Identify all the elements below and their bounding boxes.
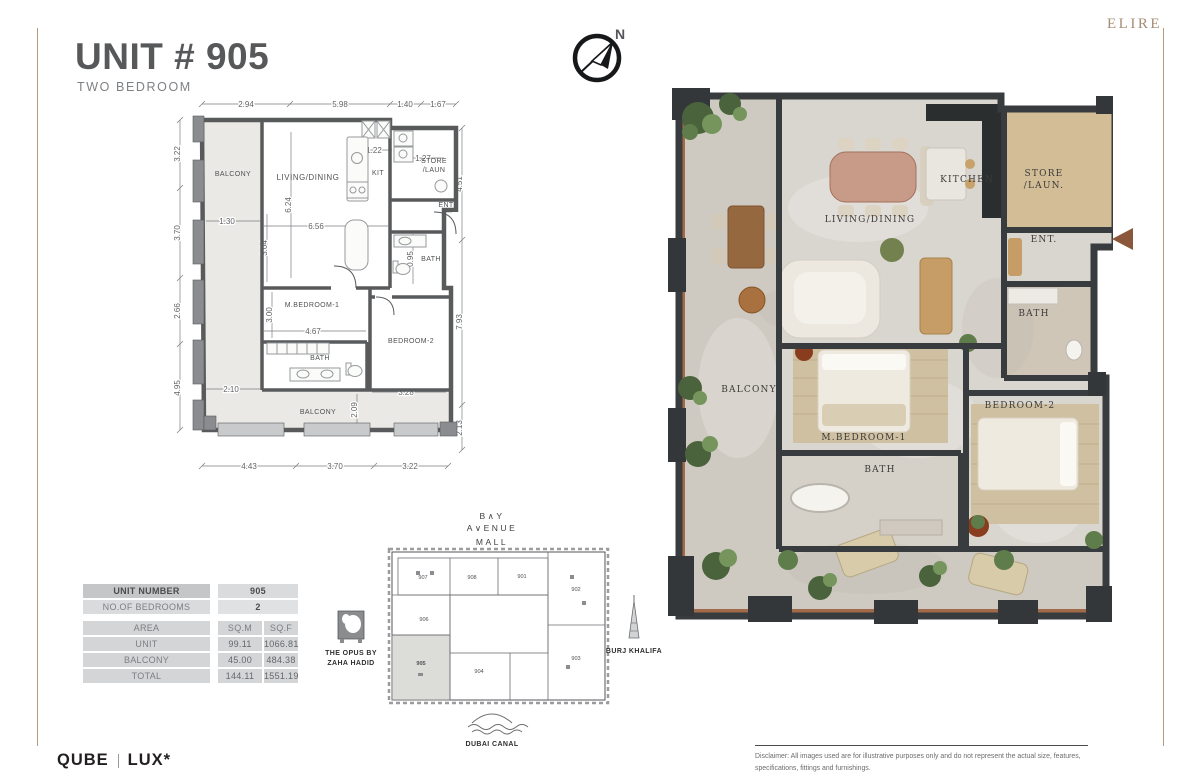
page-title: UNIT # 905 <box>75 36 269 78</box>
unit-spec-table: UNIT NUMBER 905 NO.OF BEDROOMS 2 AREA SQ… <box>83 584 298 685</box>
table-row-unit-number: UNIT NUMBER 905 <box>83 584 298 598</box>
render-label-mbedroom: M.BEDROOM-1 <box>821 433 906 443</box>
svg-text:2.09: 2.09 <box>350 402 359 418</box>
brochure-page: UNIT # 905 TWO BEDROOM ELIRE N <box>0 0 1200 783</box>
bedrooms-value: 2 <box>218 600 298 614</box>
svg-text:3.22: 3.22 <box>173 146 182 162</box>
keyplan-building: 907 908 901 902 906 905 904 903 <box>389 549 608 703</box>
table-row-total-area: TOTAL 144.11 1551.19 <box>83 669 298 683</box>
sqf-header: SQ.F <box>264 621 298 635</box>
room-label-mbedroom: M.BEDROOM-1 <box>285 302 340 309</box>
keyplan-unit-905-highlight <box>392 635 450 700</box>
render-label-bath-top: BATH <box>1018 309 1049 319</box>
svg-text:2.94: 2.94 <box>238 100 254 109</box>
disclaimer-text: Disclaimer: All images used are for illu… <box>755 745 1088 775</box>
room-label-bedroom2: BEDROOM-2 <box>388 338 434 345</box>
svg-text:ZAHA HADID: ZAHA HADID <box>327 660 374 667</box>
area-label: AREA <box>83 621 210 635</box>
render-label-kitchen: KITCHEN <box>940 175 994 185</box>
developer-logo: QUBE LUX* <box>57 751 171 770</box>
svg-text:1.30: 1.30 <box>219 217 235 226</box>
bedrooms-label: NO.OF BEDROOMS <box>83 600 210 614</box>
room-label-balcony-bottom: BALCONY <box>300 409 336 416</box>
unit-905: 905 <box>416 661 425 667</box>
keyplan-canal-landmark: DUBAI CANAL <box>465 714 528 748</box>
svg-text:4.43: 4.43 <box>241 462 257 471</box>
page-border-right <box>1163 28 1164 746</box>
svg-text:1.67: 1.67 <box>430 100 446 109</box>
unit-number-value: 905 <box>218 584 298 598</box>
svg-text:2.66: 2.66 <box>173 303 182 319</box>
keyplan-burj-landmark: BURJ KHALIFA <box>606 595 662 655</box>
svg-text:2.10: 2.10 <box>223 385 239 394</box>
unit-901: 901 <box>517 574 526 580</box>
room-label-kit: KIT <box>372 170 384 177</box>
table-row-bedrooms: NO.OF BEDROOMS 2 <box>83 600 298 614</box>
keyplan-mall-label: B∧Y A∨ENUE MALL <box>467 511 518 547</box>
svg-text:6.24: 6.24 <box>284 197 293 213</box>
page-border-left <box>37 28 38 746</box>
room-label-balcony-top: BALCONY <box>215 171 251 178</box>
render-label-ent: ENT. <box>1031 235 1058 245</box>
room-label-ent: ENT <box>438 202 454 209</box>
plan-2d-fills <box>202 120 456 430</box>
svg-text:3.70: 3.70 <box>173 225 182 241</box>
render-label-bedroom2: BEDROOM-2 <box>985 401 1056 411</box>
burj-khalifa-icon <box>629 595 639 638</box>
floorplan-3d-render: KITCHEN STORE /LAUN. LIVING/DINING ENT. … <box>668 88 1113 628</box>
table-row-balcony-area: BALCONY 45.00 484.38 <box>83 653 298 667</box>
render-label-living: LIVING/DINING <box>825 215 916 225</box>
svg-text:B∧Y: B∧Y <box>479 511 504 521</box>
dubai-canal-icon <box>468 714 528 734</box>
render-label-bath-low: BATH <box>864 465 895 475</box>
svg-text:BURJ KHALIFA: BURJ KHALIFA <box>606 648 662 655</box>
unit-number-label: UNIT NUMBER <box>83 584 210 598</box>
render-label-store-2: /LAUN. <box>1024 181 1064 191</box>
table-row-unit-area: UNIT 99.11 1066.81 <box>83 637 298 651</box>
sqm-header: SQ.M <box>218 621 262 635</box>
floorplan-2d: 2.94 5.98 1.40 1.67 3.22 3.70 2.66 4.95 … <box>165 88 480 483</box>
keyplan-map: B∧Y A∨ENUE MALL <box>320 505 670 760</box>
svg-text:MALL: MALL <box>476 537 508 547</box>
svg-text:3.70: 3.70 <box>327 462 343 471</box>
unit-903: 903 <box>571 656 580 662</box>
room-label-store-1: STORE <box>421 158 447 165</box>
svg-text:4.67: 4.67 <box>305 327 321 336</box>
svg-text:DUBAI CANAL: DUBAI CANAL <box>465 741 518 748</box>
svg-text:3.22: 3.22 <box>402 462 418 471</box>
svg-text:6.56: 6.56 <box>308 222 324 231</box>
north-compass-icon: N <box>568 22 630 88</box>
compass-north-label: N <box>615 26 625 42</box>
logo-qube: QUBE <box>57 751 109 770</box>
svg-text:1.22: 1.22 <box>366 146 382 155</box>
svg-text:7.93: 7.93 <box>455 314 464 330</box>
logo-lux: LUX* <box>128 751 171 770</box>
room-label-bath-low: BATH <box>310 355 330 362</box>
logo-divider <box>118 754 119 768</box>
svg-text:1.40: 1.40 <box>397 100 413 109</box>
brand-logo: ELIRE <box>1098 16 1162 33</box>
unit-904: 904 <box>474 669 483 675</box>
room-label-living: LIVING/DINING <box>277 173 340 182</box>
svg-text:A∨ENUE: A∨ENUE <box>467 523 518 533</box>
unit-907: 907 <box>418 575 427 581</box>
entrance-arrow-icon <box>1112 228 1133 250</box>
svg-text:3.00: 3.00 <box>265 307 274 323</box>
keyplan-opus-landmark: THE OPUS BY ZAHA HADID <box>325 611 377 667</box>
unit-902: 902 <box>571 587 580 593</box>
svg-text:THE OPUS BY: THE OPUS BY <box>325 650 377 657</box>
svg-text:4.95: 4.95 <box>173 380 182 396</box>
table-row-area-header: AREA SQ.M SQ.F <box>83 621 298 635</box>
unit-908: 908 <box>467 575 476 581</box>
room-label-bath-top: BATH <box>421 256 441 263</box>
render-label-balcony: BALCONY <box>721 385 777 395</box>
render-label-store-1: STORE <box>1025 169 1064 179</box>
svg-text:5.98: 5.98 <box>332 100 348 109</box>
room-label-store-2: /LAUN <box>423 167 446 174</box>
unit-906: 906 <box>419 617 428 623</box>
opus-building-icon <box>338 611 364 643</box>
